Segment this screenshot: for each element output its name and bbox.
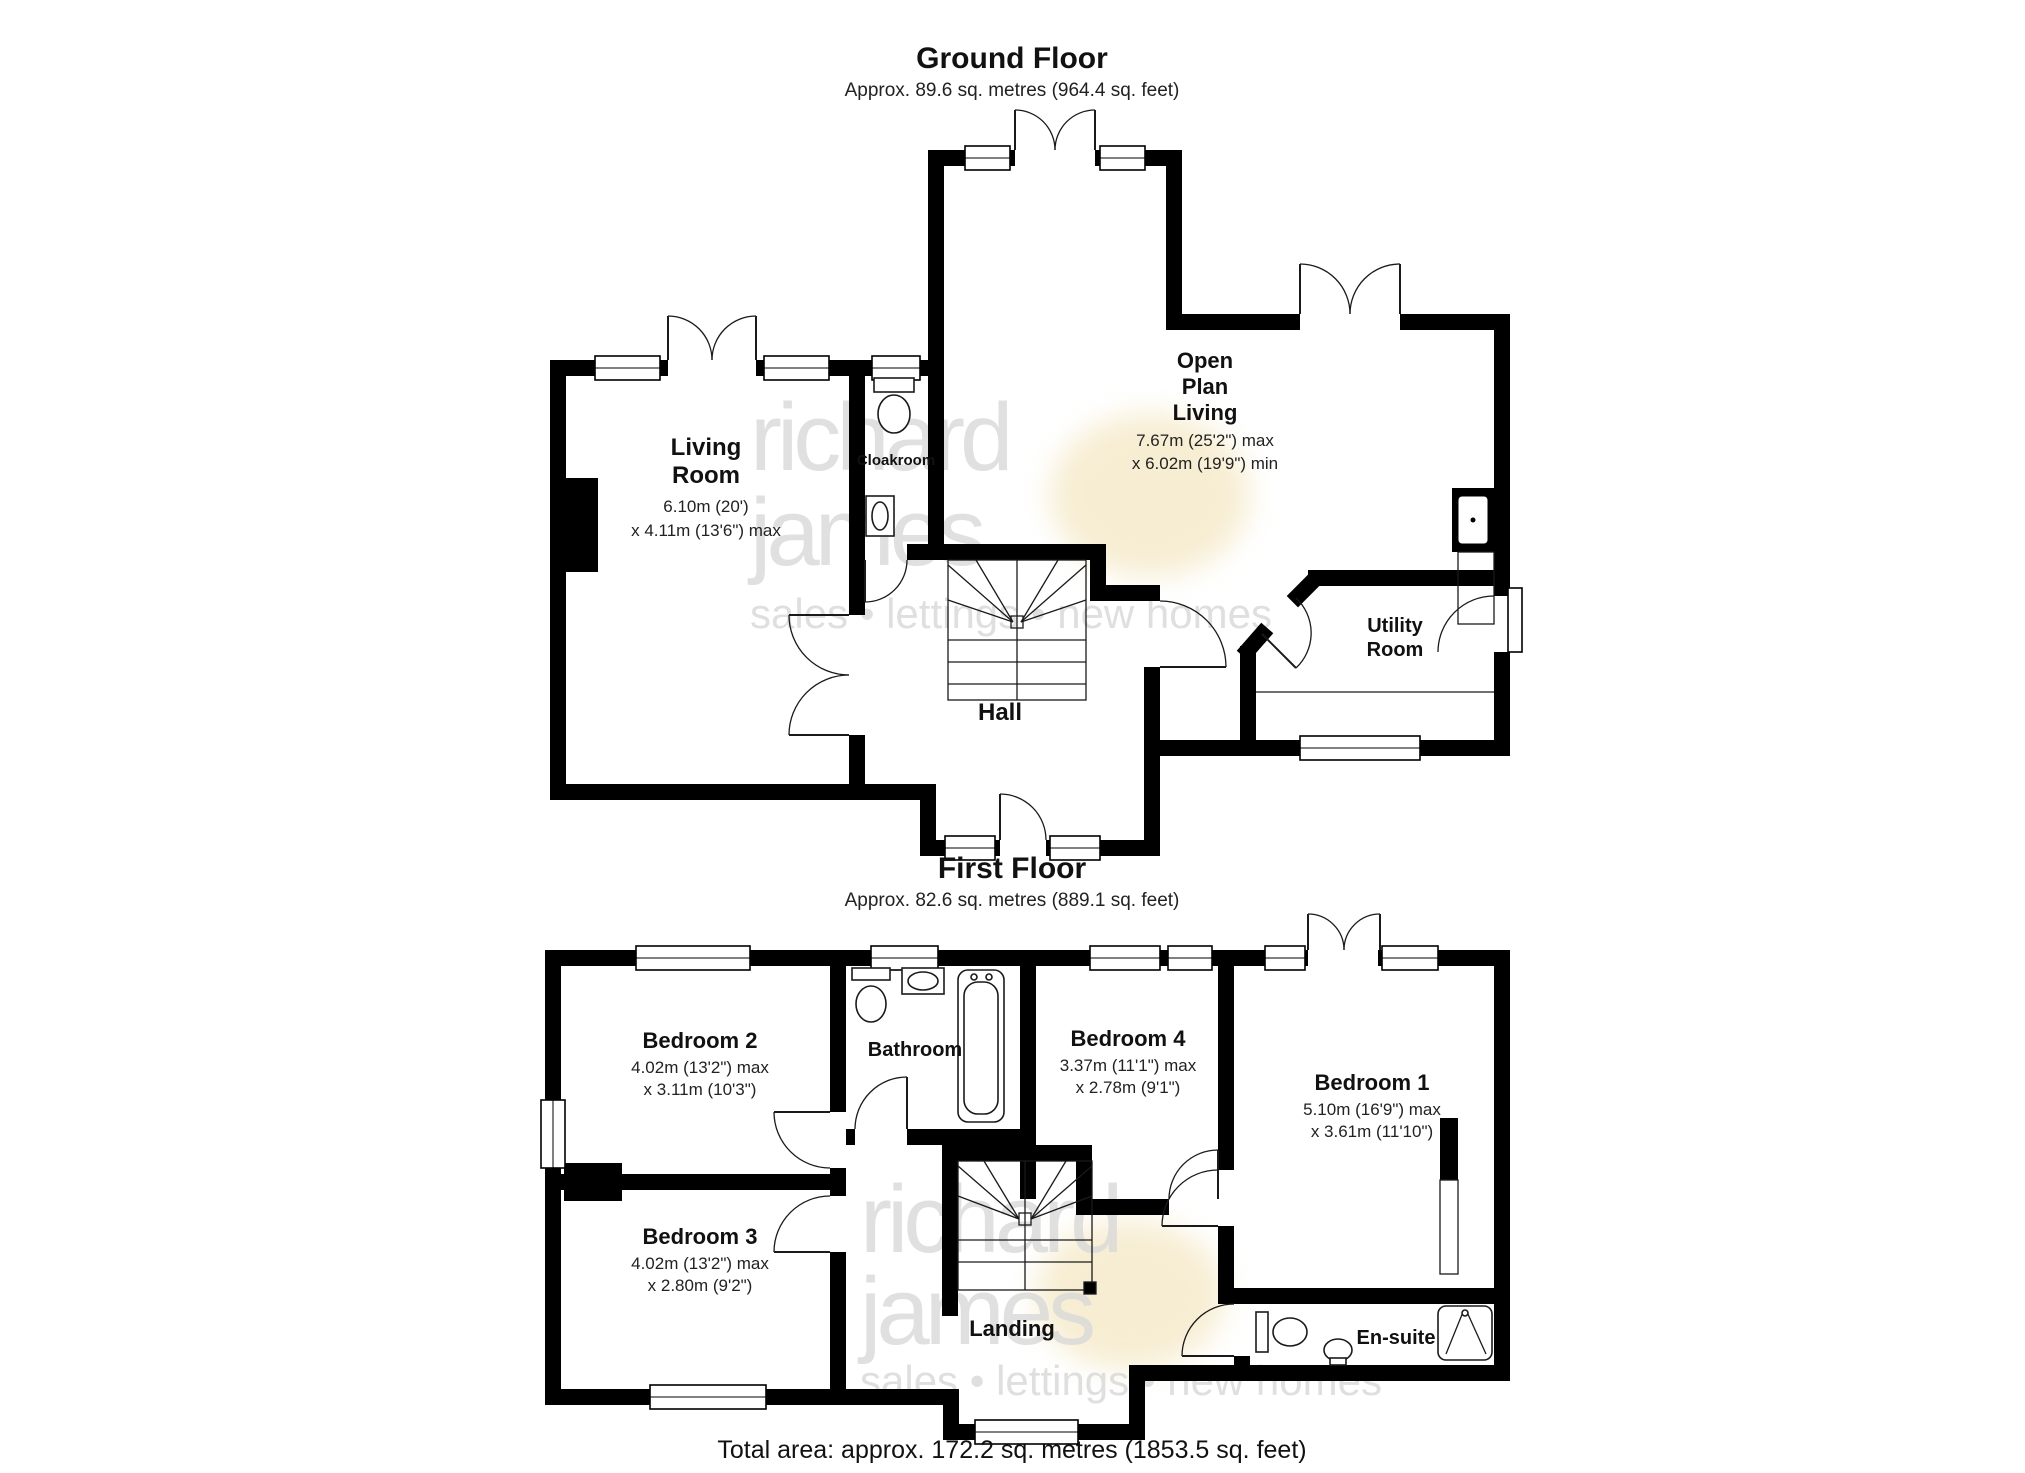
first-floor-title: First Floor [938,852,1087,885]
external-door-icon [1438,588,1522,652]
window-icon [595,356,660,380]
room-label-bathroom: Bathroom [868,1039,962,1061]
window-icon [636,946,750,970]
window-icon [965,146,1010,170]
first-floor-subtitle: Approx. 82.6 sq. metres (889.1 sq. feet) [845,890,1180,911]
room-label-utility-room: Utility [1367,615,1423,637]
window-icon [872,356,920,380]
room-label-open-plan-living: Living [1173,400,1238,425]
floorplan-canvas: richard james sales • lettings • new hom… [0,0,2025,1473]
room-label-living-room: Room [672,462,740,489]
window-icon [871,946,938,970]
door-icon [1162,1170,1218,1226]
ground-floor-subtitle: Approx. 89.6 sq. metres (964.4 sq. feet) [845,80,1180,101]
watermark-line2: james [857,1258,1093,1365]
window-icon [1168,946,1212,970]
room-label-bedroom-1: Bedroom 1 [1315,1070,1430,1095]
window-icon [1382,946,1438,970]
room-dim: x 6.02m (19'9") min [1132,454,1278,473]
room-dim: 4.02m (13'2") max [631,1254,769,1273]
front-door-icon [1000,794,1046,840]
room-dim: 6.10m (20') [663,497,748,516]
window-icon [1090,946,1160,970]
toilet-icon [852,968,890,1022]
room-label-bedroom-4: Bedroom 4 [1071,1026,1187,1051]
total-area-text: Total area: approx. 172.2 sq. metres (18… [717,1436,1306,1464]
toilet-icon [874,378,914,433]
room-label-living-room: Living [671,434,742,461]
window-icon [541,1100,565,1168]
room-dim: 5.10m (16'9") max [1303,1100,1441,1119]
room-label-bedroom-2: Bedroom 2 [643,1028,758,1053]
room-label-bedroom-3: Bedroom 3 [643,1224,758,1249]
room-dim: x 3.11m (10'3") [644,1080,757,1099]
french-door-icon [668,316,756,360]
room-dim: 4.02m (13'2") max [631,1058,769,1077]
room-dim: x 4.11m (13'6") max [631,521,781,540]
room-label-open-plan-living: Plan [1182,374,1228,399]
french-door-icon [1300,264,1400,314]
door-icon [1169,1150,1218,1199]
window-icon [1300,736,1420,760]
sink-icon [902,968,944,994]
window-icon [764,356,829,380]
door-icon [774,1196,830,1252]
door-icon [774,1112,830,1168]
room-label-ensuite: En-suite [1357,1327,1436,1349]
window-icon [1265,946,1305,970]
shower-icon [1438,1306,1492,1360]
bathtub-icon [958,970,1004,1122]
room-label-landing: Landing [969,1316,1055,1341]
door-icon [855,1077,907,1129]
room-label-cloakroom: Cloakroom [857,452,935,469]
room-dim: x 2.78m (9'1") [1076,1078,1181,1097]
kitchen-sink-icon [1452,488,1494,624]
toilet-icon [1256,1312,1307,1352]
room-label-hall: Hall [978,699,1022,726]
window-icon [1100,146,1145,170]
watermark-tagline: sales • lettings • new homes [750,590,1272,637]
wardrobe-icon [1440,1180,1458,1274]
watermark-line1: richard [750,384,1008,491]
room-dim: x 3.61m (11'10") [1311,1122,1433,1141]
ground-floor-title: Ground Floor [916,42,1108,75]
room-dim: 7.67m (25'2") max [1136,431,1274,450]
room-label-open-plan-living: Open [1177,348,1233,373]
french-door-icon [1308,914,1380,950]
room-dim: x 2.80m (9'2") [648,1276,753,1295]
floorplan-page: richard james sales • lettings • new hom… [0,0,2025,1473]
room-label-utility-room: Room [1367,639,1424,661]
room-dim: 3.37m (11'1") max [1060,1056,1197,1075]
window-icon [650,1385,766,1409]
french-door-icon [1015,110,1095,150]
sink-icon [866,496,894,536]
